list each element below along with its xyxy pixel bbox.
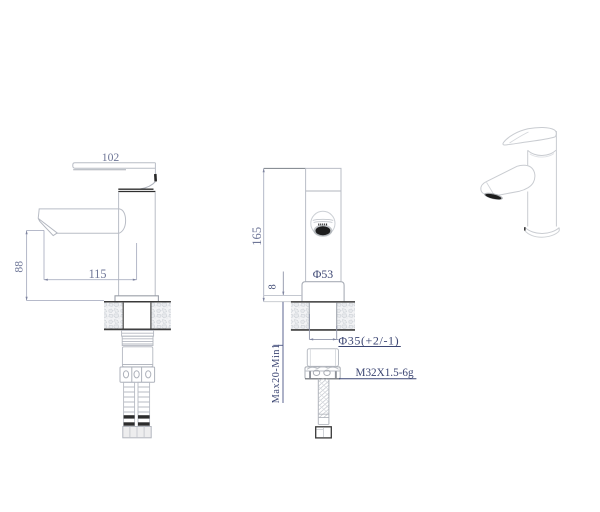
svg-text:8: 8: [267, 284, 278, 289]
svg-text:115: 115: [89, 267, 107, 281]
svg-text:88: 88: [13, 261, 26, 273]
svg-text:M32X1.5-6g: M32X1.5-6g: [356, 367, 415, 379]
svg-text:165: 165: [250, 227, 264, 246]
svg-text:102: 102: [102, 151, 120, 164]
svg-text:Φ53: Φ53: [313, 267, 334, 281]
svg-text:Max20-Min1: Max20-Min1: [271, 343, 282, 403]
svg-text:Φ35(+2/-1): Φ35(+2/-1): [338, 333, 399, 347]
